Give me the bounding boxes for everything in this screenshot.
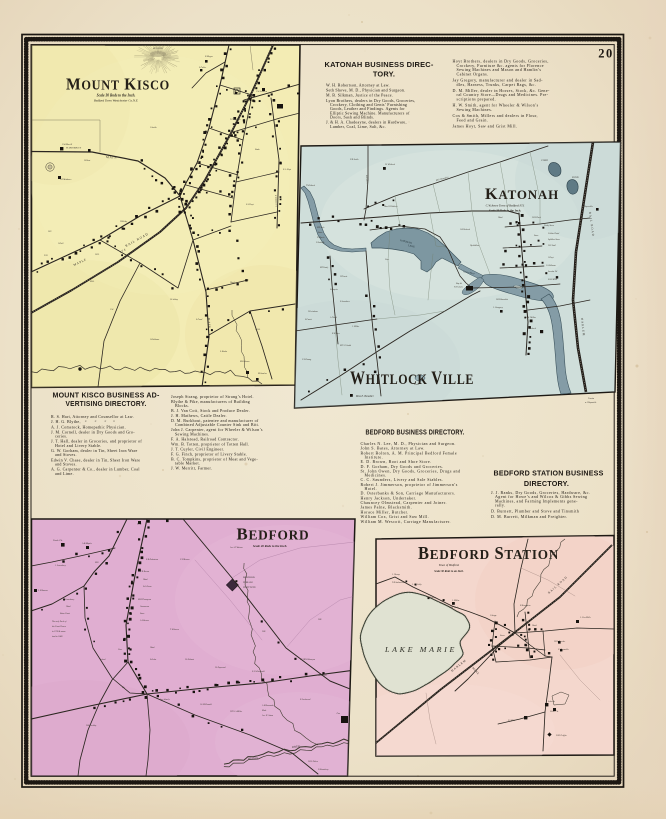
svg-text:St.J.Owen: St.J.Owen <box>143 585 151 588</box>
svg-text:P. Tracey: P. Tracey <box>427 597 436 599</box>
svg-text:A.Flood: A.Flood <box>329 316 338 319</box>
svg-text:M.Kisbons: M.Kisbons <box>239 361 250 363</box>
svg-text:R.Moger: R.Moger <box>204 56 213 58</box>
svg-text:Scale 30 Rods to an Inch.: Scale 30 Rods to an Inch. <box>434 570 464 573</box>
svg-text:J.B.Weslock: J.B.Weslock <box>460 229 470 231</box>
svg-text:MOUNT KISCO: MOUNT KISCO <box>66 75 170 94</box>
svg-text:Town of Bedford.: Town of Bedford. <box>439 563 460 567</box>
svg-text:W.Acinhous: W.Acinhous <box>308 310 318 313</box>
svg-text:20: 20 <box>598 47 614 61</box>
svg-text:Sewing Machines.: Sewing Machines. <box>457 107 493 112</box>
svg-text:W.R.: W.R. <box>318 619 322 621</box>
svg-text:Store: Store <box>500 634 505 637</box>
svg-text:Store: Store <box>534 234 538 237</box>
svg-text:G.Broadway: G.Broadway <box>318 769 329 771</box>
svg-text:School: School <box>100 659 106 661</box>
svg-text:W.Ackley: W.Ackley <box>170 298 178 301</box>
svg-text:R.Boughton: R.Boughton <box>519 604 530 607</box>
svg-text:Cabinet Organs.: Cabinet Organs. <box>457 72 489 77</box>
svg-text:T.B.Sutherland: T.B.Sutherland <box>392 581 406 584</box>
svg-text:S.Esqrois: S.Esqrois <box>330 289 338 291</box>
svg-text:Presb. Ch.: Presb. Ch. <box>52 540 63 542</box>
svg-text:J. Stregory: J. Stregory <box>493 306 504 309</box>
svg-text:H.T.S.A.Miller: H.T.S.A.Miller <box>229 710 242 713</box>
svg-text:TORY.: TORY. <box>373 70 395 79</box>
svg-text:Bay &: Bay & <box>456 283 462 285</box>
svg-text:R.W.Burr: R.W.Burr <box>331 333 340 335</box>
svg-text:J.L.M.Donald: J.L.M.Donald <box>200 704 213 706</box>
svg-text:Cem.: Cem. <box>385 259 390 261</box>
svg-text:Jimmerson: Jimmerson <box>140 606 149 608</box>
svg-text:rally.: rally. <box>495 503 505 508</box>
svg-text:Bates Court: Bates Court <box>60 612 70 615</box>
svg-text:W.C.Stall: W.C.Stall <box>548 244 556 247</box>
svg-text:E.Lockwood: E.Lockwood <box>299 699 311 701</box>
svg-text:M! HH.Killmayen: M! HH.Killmayen <box>299 659 315 661</box>
svg-text:Purdy Store: Purdy Store <box>543 224 554 227</box>
svg-text:A.S.Brown: A.S.Brown <box>139 619 149 622</box>
svg-text:N. Mills: N. Mills <box>507 720 515 722</box>
svg-text:L.Weeks: L.Weeks <box>219 351 227 353</box>
svg-text:Cox: Cox <box>337 713 340 715</box>
svg-text:FEMALE: FEMALE <box>243 581 253 584</box>
svg-text:Jas.Ackerly: Jas.Ackerly <box>160 698 170 701</box>
svg-text:J.W.Morrill: J.W.Morrill <box>62 144 73 146</box>
svg-text:G.Smith&: G.Smith& <box>316 241 325 244</box>
svg-text:J.W.: J.W. <box>110 309 114 311</box>
svg-text:J.W.Johnson: J.W.Johnson <box>256 91 267 93</box>
svg-text:Feed and Grain.: Feed and Grain. <box>457 117 489 122</box>
svg-text:J. Miller: J. Miller <box>452 600 460 602</box>
svg-text:E.A.Hoyt: E.A.Hoyt <box>282 168 291 171</box>
svg-text:N.Francis: N.Francis <box>453 287 463 289</box>
svg-text:Bedford Town Westchester Co.N.: Bedford Town Westchester Co.N.Y. <box>94 99 139 103</box>
svg-text:Scale 40 Rods to the Inch.: Scale 40 Rods to the Inch. <box>253 544 288 548</box>
svg-text:a.J.Reynolds: a.J.Reynolds <box>585 402 596 404</box>
svg-text:W.West: W.West <box>84 159 91 162</box>
svg-text:J.Stage: J.Stage <box>490 614 496 617</box>
svg-text:C. Reynolds: C. Reynolds <box>558 649 569 651</box>
svg-text:P.M. Griffin: P.M. Griffin <box>555 734 566 737</box>
svg-text:Store: Store <box>318 231 322 234</box>
svg-text:Bank: Bank <box>255 149 260 151</box>
svg-text:J.Lounsbury: J.Lounsbury <box>64 599 74 601</box>
svg-text:W!! Wade: W!! Wade <box>450 607 459 609</box>
svg-text:Hotel: Hotel <box>142 578 148 581</box>
svg-text:W.R.: W.R. <box>262 631 266 633</box>
svg-text:Cem.: Cem. <box>118 649 123 651</box>
svg-text:POND: POND <box>572 176 579 179</box>
svg-text:J.Hadwell: J.Hadwell <box>318 675 327 677</box>
svg-text:S.Pearis: S.Pearis <box>305 319 312 321</box>
svg-text:LAKE MARIE: LAKE MARIE <box>384 645 457 654</box>
svg-text:W.B.Lockley: W.B.Lockley <box>86 725 96 727</box>
svg-text:T. Kilmore: T. Kilmore <box>170 629 179 631</box>
svg-text:J.Smith: J.Smith <box>150 126 157 129</box>
svg-text:S.S.Hoyt: S.S.Hoyt <box>246 203 254 206</box>
svg-text:Mill: Mill <box>94 562 99 564</box>
svg-text:Miss E. Benedict: Miss E. Benedict <box>355 395 374 398</box>
svg-text:Jos.A.T.Watson: Jos.A.T.Watson <box>230 546 243 549</box>
svg-text:J. Cox Mills: J. Cox Mills <box>580 617 591 619</box>
svg-text:W. Whitlock: W. Whitlock <box>385 163 395 166</box>
svg-text:Hotel: Hotel <box>229 281 235 284</box>
svg-text:Schools: Schools <box>548 701 555 703</box>
svg-text:SAW MILL: SAW MILL <box>548 278 558 281</box>
svg-text:BEDFORD BUSINESS DIRECTORY.: BEDFORD BUSINESS DIRECTORY. <box>366 430 465 437</box>
svg-text:C.H.Brown: C.H.Brown <box>180 559 189 561</box>
svg-text:Collins Hotel: Collins Hotel <box>548 232 560 235</box>
svg-text:J. Miller: J. Miller <box>352 326 359 328</box>
svg-text:Jos. H. Suton: Jos. H. Suton <box>262 714 273 717</box>
svg-text:School: School <box>530 328 537 330</box>
svg-text:and Lime.: and Lime. <box>55 471 74 476</box>
svg-text:Hotel: Hotel <box>531 624 537 627</box>
svg-text:C.W.Avery Town of Bedford N.: C.W.Avery Town of Bedford N.Y. <box>486 204 525 208</box>
svg-text:J. M! Sally: J. M! Sally <box>412 584 422 586</box>
svg-text:M!!Purdy: M!!Purdy <box>319 267 328 269</box>
svg-text:INSTITUTE: INSTITUTE <box>243 586 256 589</box>
svg-text:The only Earls of: The only Earls of <box>52 620 67 623</box>
svg-text:Hoa.13Whitlock: Hoa.13Whitlock <box>383 205 398 208</box>
svg-text:C.S.Hoang: C.S.Hoang <box>302 359 311 361</box>
svg-text:POND: POND <box>541 159 548 162</box>
svg-text:KATONAH BUSINESS DIREC-: KATONAH BUSINESS DIREC- <box>325 60 434 69</box>
svg-text:H.H. Fowler: H.H. Fowler <box>553 641 565 643</box>
svg-text:E.B.Robertson: E.B.Robertson <box>145 558 158 561</box>
svg-text:E.L.Whitmould: E.L.Whitmould <box>251 670 266 673</box>
svg-text:BEDFORD: BEDFORD <box>243 576 255 579</box>
svg-text:A.B.Maytis: A.B.Maytis <box>81 542 92 545</box>
svg-text:WHITLOCK VILLE: WHITLOCK VILLE <box>350 368 474 389</box>
svg-text:BEDFORD STATION BUSINESS: BEDFORD STATION BUSINESS <box>494 469 604 478</box>
svg-text:Lumber Yd: Lumber Yd <box>547 271 558 273</box>
svg-text:C.R.Brown: C.R.Brown <box>140 571 149 573</box>
svg-text:M!Finch: M!Finch <box>316 227 324 229</box>
svg-text:DIRECTORY.: DIRECTORY. <box>524 479 569 488</box>
svg-text:N.R.Smith: N.R.Smith <box>349 158 358 161</box>
svg-text:H.Travis: H.Travis <box>339 276 347 278</box>
svg-text:BEDFORD: BEDFORD <box>237 525 310 544</box>
svg-text:T.Whitlock: T.Whitlock <box>306 184 315 187</box>
svg-text:W.F.: W.F. <box>48 231 52 233</box>
svg-text:Hotel: Hotel <box>149 646 155 649</box>
svg-text:the Court House: the Court House <box>52 625 66 628</box>
svg-text:S.Fuller: S.Fuller <box>199 67 206 69</box>
svg-text:Blad.: Blad. <box>262 710 267 712</box>
svg-text:J. Honey: J. Honey <box>392 574 400 576</box>
svg-text:Scale 30 Rods to the Inch.: Scale 30 Rods to the Inch. <box>97 94 136 98</box>
svg-text:W. PROSPECT: W. PROSPECT <box>66 147 82 150</box>
svg-text:W. Raymond: W. Raymond <box>215 667 226 669</box>
svg-text:N.G.: N.G. <box>43 255 49 257</box>
svg-text:J.A.B.: J.A.B. <box>255 328 261 331</box>
svg-text:M! KISCO: M! KISCO <box>152 47 164 50</box>
svg-text:Sq&Son Store: Sq&Son Store <box>548 238 560 241</box>
svg-text:Glass Ch.: Glass Ch. <box>550 711 559 713</box>
svg-text:J.Hall: J.Hall <box>58 243 64 245</box>
svg-text:M.B.: M.B. <box>89 281 95 283</box>
svg-text:L.Smackers: L.Smackers <box>339 301 350 303</box>
svg-text:J.Hoyt: J.Hoyt <box>548 256 554 259</box>
svg-text:Reynolds: Reynolds <box>583 205 593 208</box>
svg-text:H.Kirby: H.Kirby <box>119 221 127 223</box>
svg-text:Fornia: Fornia <box>587 398 595 400</box>
svg-text:W. Kisbent: W. Kisbent <box>185 658 194 661</box>
svg-text:J.R.Mathews: J.R.Mathews <box>60 178 71 181</box>
svg-text:M!!! G.Smith: M!!! G.Smith <box>339 344 351 347</box>
svg-text:Store: Store <box>140 612 144 615</box>
svg-text:in 1790 & rema-: in 1790 & rema- <box>52 631 66 633</box>
svg-text:Hotel: Hotel <box>65 605 71 608</box>
svg-text:W.H. Nielse: W.H. Nielse <box>308 761 318 763</box>
svg-text:S.Pond: S.Pond <box>196 319 203 321</box>
svg-text:Ch.: Ch. <box>122 687 125 689</box>
svg-text:Hotel: Hotel <box>497 216 503 219</box>
svg-text:J.Kirkham: J.Kirkham <box>150 339 160 341</box>
svg-text:St.Luke: St.Luke <box>150 658 156 661</box>
svg-text:scriptions prepared.: scriptions prepared. <box>457 97 497 102</box>
svg-text:KATONAH: KATONAH <box>485 186 559 203</box>
svg-text:M.Searles: M.Searles <box>257 373 267 375</box>
svg-text:N.Harris: N.Harris <box>316 237 325 239</box>
svg-text:W.H.Benedict: W.H.Benedict <box>496 298 508 301</box>
svg-text:Wyck&Son: Wyck&Son <box>470 245 479 247</box>
svg-text:W.H.: W.H. <box>95 254 100 256</box>
svg-text:J. Lounsbury: J. Lounsbury <box>55 565 66 567</box>
svg-text:J.S.Silkman: J.S.Silkman <box>546 265 556 267</box>
svg-text:MAIN: MAIN <box>106 155 117 160</box>
svg-text:W.H.Clark: W.H.Clark <box>532 217 541 219</box>
svg-text:T.Carpenter: T.Carpenter <box>230 118 241 121</box>
svg-text:B.M. Miller: B.M. Miller <box>525 317 536 319</box>
svg-text:M.D.Thompson: M.D.Thompson <box>137 599 151 601</box>
svg-text:ined to 1848: ined to 1848 <box>52 635 63 638</box>
svg-text:A.Willemande: A.Willemande <box>261 704 274 707</box>
svg-text:VERTISING DIRECTORY.: VERTISING DIRECTORY. <box>66 399 147 408</box>
svg-text:J. Kilmore: J. Kilmore <box>38 590 48 592</box>
